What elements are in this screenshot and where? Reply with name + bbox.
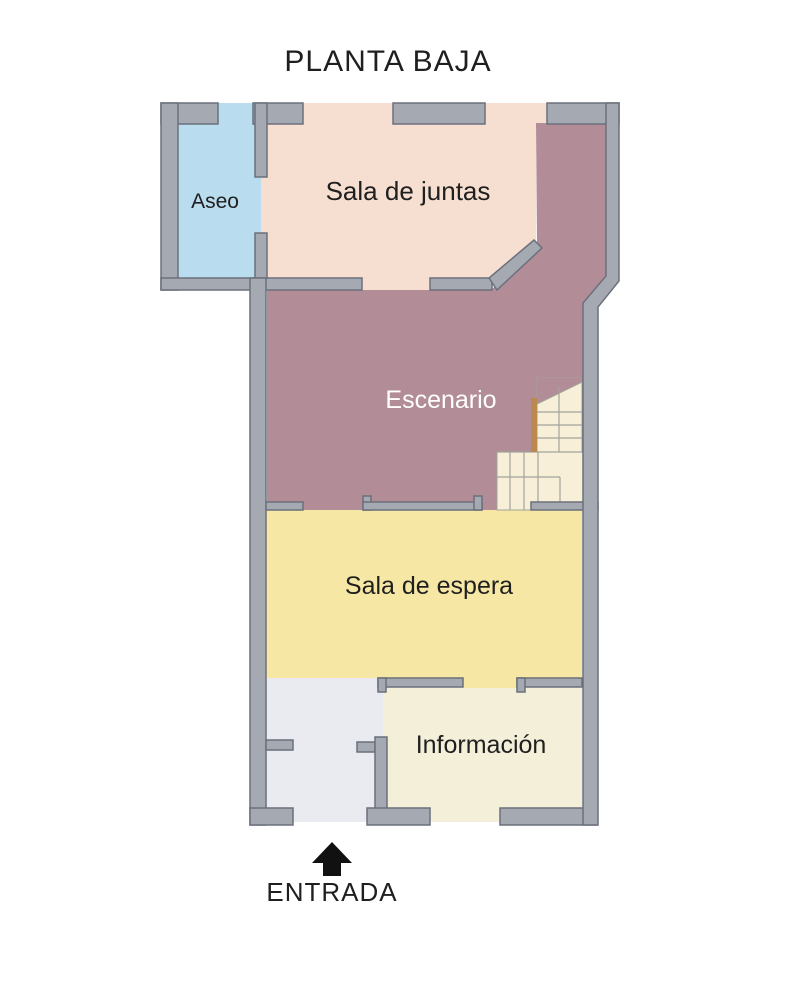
up-arrow-icon <box>312 842 352 876</box>
wall-segment <box>378 678 386 692</box>
wall-segment <box>393 103 485 124</box>
wall-segment <box>357 742 375 752</box>
floor-plan-page: PLANTA BAJA <box>0 0 794 992</box>
wall-segment <box>517 678 582 687</box>
wall-segment <box>363 502 482 510</box>
wall-segment <box>266 502 303 510</box>
doorway-espera-informacion-floor <box>463 678 517 688</box>
wall-segment <box>161 103 178 290</box>
room-label-informacion: Información <box>416 731 547 759</box>
room-label-aseo: Aseo <box>191 190 239 213</box>
room-label-escenario: Escenario <box>385 386 496 414</box>
wall-segment <box>266 740 293 750</box>
wall-segment <box>378 678 463 687</box>
wall-segment <box>430 278 492 290</box>
room-label-sala-de-espera: Sala de espera <box>345 572 513 600</box>
wall-segment <box>255 233 267 278</box>
wall-segment <box>250 808 293 825</box>
entrance: ENTRADA <box>266 842 397 907</box>
wall-segment <box>375 737 387 812</box>
stair-handrail <box>531 398 537 452</box>
wall-segment <box>517 678 525 692</box>
page-title: PLANTA BAJA <box>284 45 491 78</box>
floor-plan-canvas: PLANTA BAJA <box>0 0 794 992</box>
entrance-label: ENTRADA <box>266 877 397 907</box>
room-label-sala-de-juntas: Sala de juntas <box>326 176 491 206</box>
wall-segment <box>255 103 267 177</box>
wall-segment <box>367 808 430 825</box>
wall-segment <box>474 496 482 510</box>
wall-segment <box>250 278 266 825</box>
